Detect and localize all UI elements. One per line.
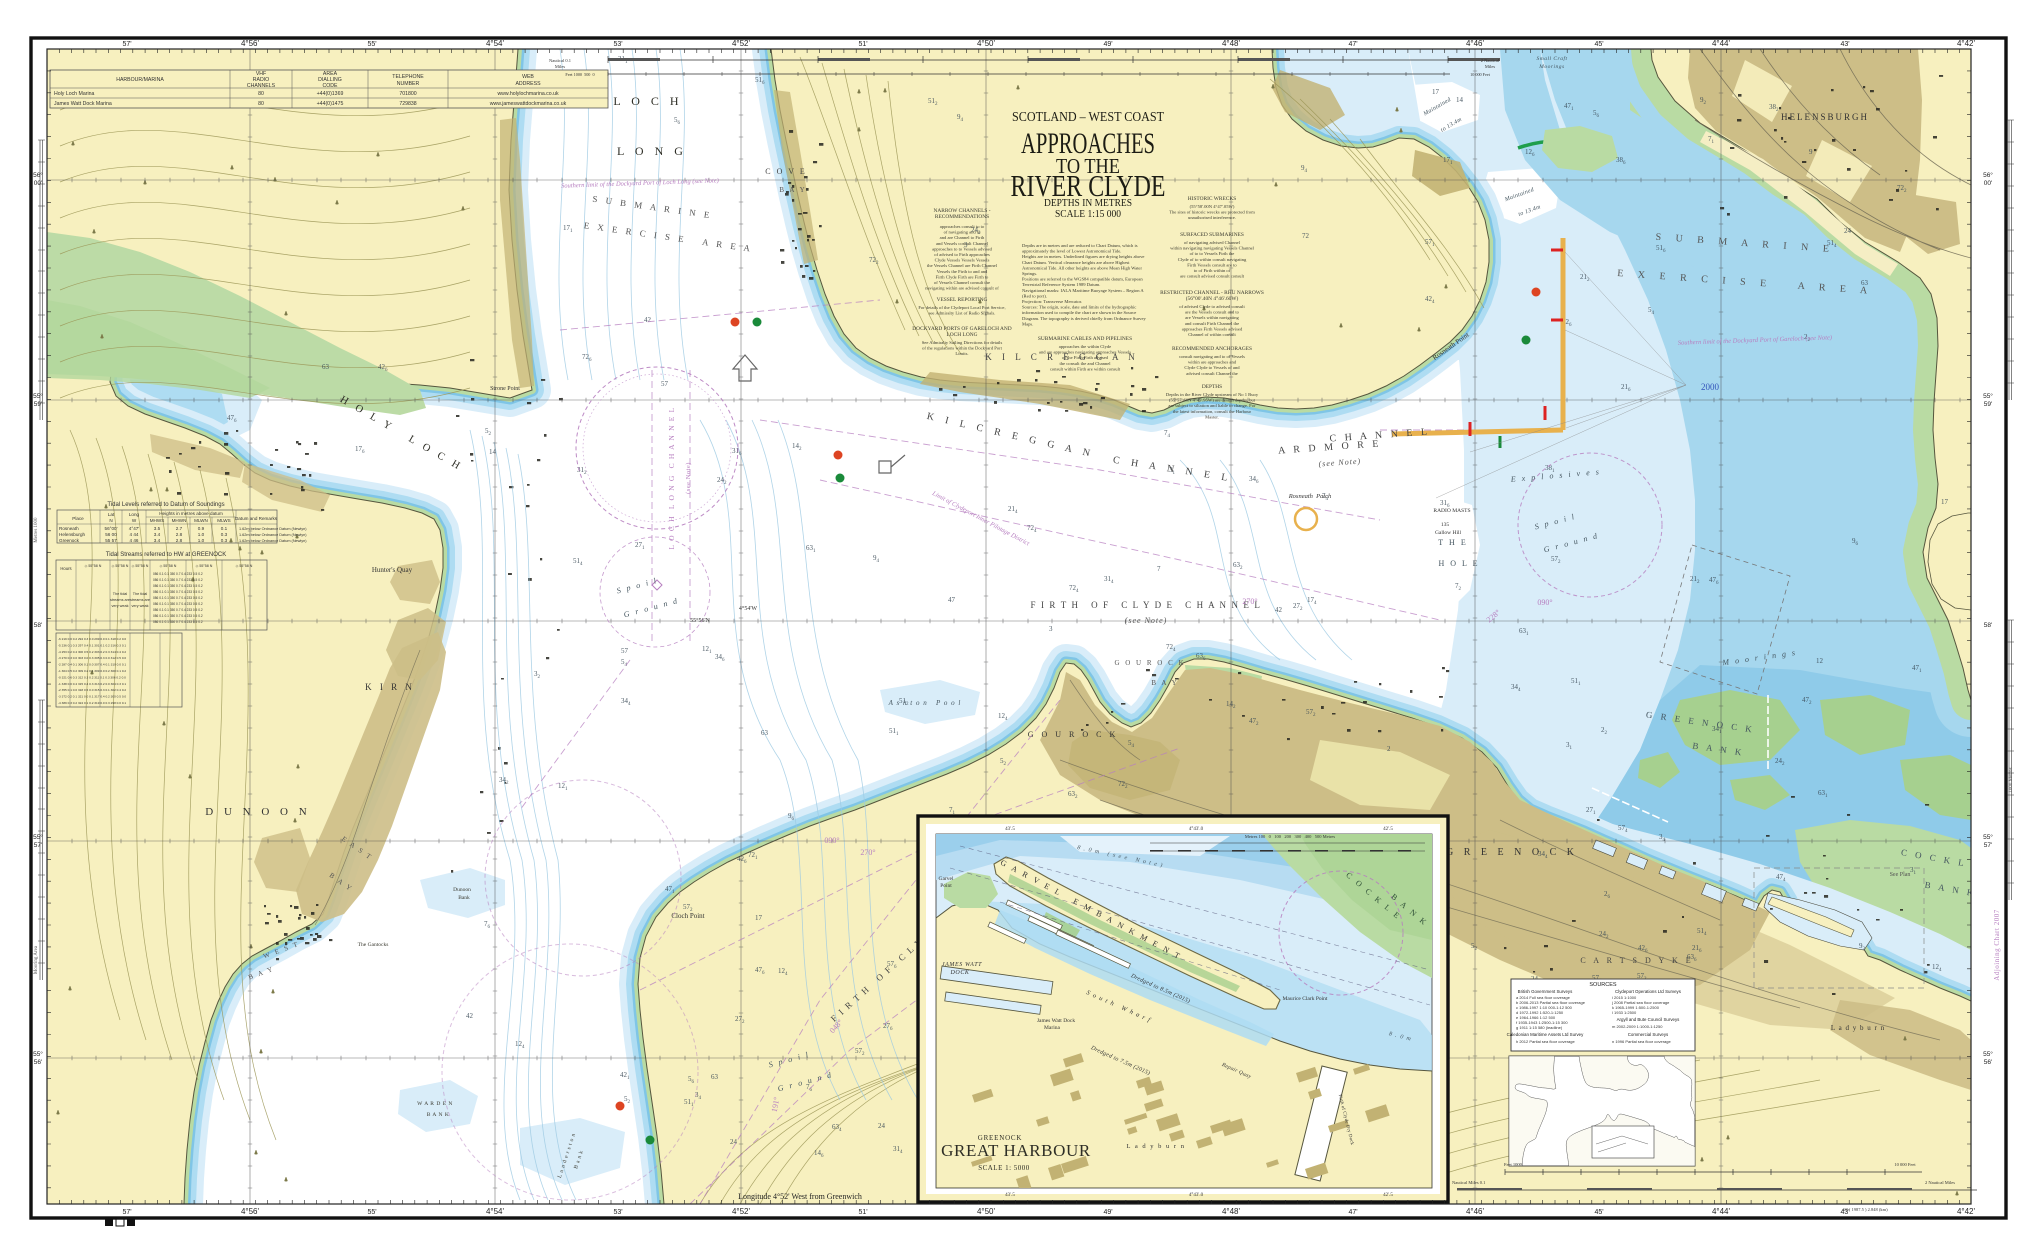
svg-text:RESTRICTED CHANNEL - RHU NARRO: RESTRICTED CHANNEL - RHU NARROWS [1160, 290, 1264, 296]
svg-text:63: 63 [322, 363, 330, 371]
svg-text:Garvel: Garvel [939, 876, 954, 882]
svg-text:of advised to Firth approaches: of advised to Firth approaches [934, 252, 990, 257]
svg-text:53': 53' [613, 1209, 622, 1216]
svg-text:4°47': 4°47' [129, 526, 140, 531]
svg-text:086 0.1 0.1 350 0.7 0.4 23: 086 0.1 0.1 350 0.7 0.4 233 0.5 0.2 [153, 614, 203, 618]
svg-text:Bank: Bank [458, 895, 470, 901]
svg-text:G O U R O C K: G O U R O C K [1028, 730, 1119, 739]
svg-text:SCALE 1:15 000: SCALE 1:15 000 [1055, 209, 1121, 220]
svg-text:24: 24 [1844, 227, 1852, 235]
svg-text:SOURCES: SOURCES [1589, 982, 1617, 988]
svg-text:HELENSBURGH: HELENSBURGH [1781, 112, 1869, 122]
svg-text:◇ 55°58 N: ◇ 55°58 N [85, 564, 102, 568]
svg-text:SUBMARINE CABLES AND PIPELINES: SUBMARINE CABLES AND PIPELINES [1038, 336, 1132, 342]
svg-text:Lat: Lat [108, 512, 115, 517]
svg-text:-2 287 0.4 0.1 306 0.1 0.0 3: -2 287 0.4 0.1 306 0.1 0.0 307 0.4 0.1 3… [58, 663, 126, 667]
svg-text:Datum and Remarks: Datum and Remarks [235, 516, 278, 521]
svg-text:-5 236 0.1 0.3 297 0.4 0.1 3: -5 236 0.1 0.3 297 0.4 0.1 301 0.1 0.2 3… [58, 643, 126, 647]
svg-text:RECOMMENDED ANCHORAGES: RECOMMENDED ANCHORAGES [1172, 346, 1252, 352]
svg-text:very weak: very weak [111, 604, 128, 608]
svg-text:consult navigating and to of V: consult navigating and to of Vessels [1179, 354, 1245, 359]
svg-text:and are Channel to Firth: and are Channel to Firth [940, 235, 985, 240]
svg-text:TELEPHONE: TELEPHONE [392, 74, 424, 80]
svg-text:Vessels the Firth to and and: Vessels the Firth to and and [937, 269, 988, 274]
svg-text:4°42': 4°42' [1957, 39, 1976, 48]
svg-text:47: 47 [948, 596, 956, 604]
svg-text:47': 47' [1348, 1209, 1357, 1216]
svg-text:4°50': 4°50' [977, 39, 996, 48]
svg-text:consult within Firth are withi: consult within Firth are within consult [1050, 366, 1121, 371]
svg-text:Metres 100 0 100 200 3: Metres 100 0 100 200 300 400 500 Metres [1245, 834, 1335, 839]
svg-text:57': 57' [34, 842, 42, 849]
svg-text:Feet 1000 500 0: Feet 1000 500 0 [565, 72, 594, 77]
svg-text:MHWS: MHWS [150, 518, 165, 523]
svg-text:086 0.1 0.1 350 0.7 0.4 23: 086 0.1 0.1 350 0.7 0.4 233 0.5 0.2 [153, 578, 203, 582]
svg-text:the Vessels Channel are Firth: the Vessels Channel are Firth Channel [927, 263, 998, 268]
svg-text:Miles: Miles [1485, 64, 1495, 69]
svg-text:0.3: 0.3 [221, 538, 228, 543]
svg-text:Firth Clyde Firth are Firth to: Firth Clyde Firth are Firth to [936, 274, 989, 279]
svg-text:SCOTLAND – WEST COAST: SCOTLAND – WEST COAST [1012, 110, 1164, 125]
svg-text:090°: 090° [824, 836, 839, 845]
svg-text:Limits.: Limits. [955, 351, 968, 356]
svg-text:◇ 55°58 N: ◇ 55°58 N [236, 564, 253, 568]
svg-text:270°: 270° [1242, 597, 1257, 606]
svg-text:L a d y b u r n: L a d y b u r n [1127, 1143, 1186, 1150]
svg-text:17: 17 [755, 914, 763, 922]
svg-text:Helensburgh: Helensburgh [59, 532, 85, 537]
svg-text:Clydeport Operations Ltd Surve: Clydeport Operations Ltd Surveys [1615, 989, 1682, 994]
svg-text:CODE: CODE [323, 83, 339, 89]
svg-text:Holy Loch Marina: Holy Loch Marina [54, 91, 94, 97]
svg-text:72: 72 [1302, 232, 1310, 240]
svg-text:Projection: Transverse Mercato: Projection: Transverse Mercator. [1022, 299, 1082, 304]
svg-text:0.1: 0.1 [221, 526, 228, 531]
svg-text:Terrestrial Reference System 1: Terrestrial Reference System 1989 Datum. [1022, 282, 1100, 287]
svg-text:of the regulations within the: of the regulations within the Dockyard P… [922, 346, 1003, 351]
svg-text:80: 80 [258, 91, 264, 97]
svg-text:F I R T H O F C L Y D E: F I R T H O F C L Y D E C H A N N E L [1031, 600, 1262, 610]
svg-text:42: 42 [644, 316, 652, 324]
svg-text:British Government Surveys: British Government Surveys [1518, 989, 1573, 994]
svg-text:are consult advised consult co: are consult advised consult consult [1180, 274, 1245, 279]
svg-text:43'.5: 43'.5 [1005, 1193, 1015, 1198]
svg-text:ADDRESS: ADDRESS [515, 81, 541, 87]
svg-text:-3 270 0.3 0.0 303 0.0 0.3 3: -3 270 0.3 0.0 303 0.0 0.3 305 0.3 0.0 3… [58, 656, 126, 660]
svg-text:MLWN: MLWN [194, 518, 208, 523]
svg-text:2.7: 2.7 [176, 526, 183, 531]
svg-text:701800: 701800 [399, 91, 416, 97]
svg-text:55°: 55° [33, 833, 43, 841]
svg-text:+44(0)1369: +44(0)1369 [317, 91, 344, 97]
svg-text:See Plan: See Plan [1890, 872, 1911, 878]
svg-text:the consult the and Channel: the consult the and Channel [1059, 361, 1111, 366]
svg-text:-2 355 0.1 0.0 318 0.5 0.0 3: -2 355 0.1 0.0 318 0.5 0.0 315 0.3 0.1 3… [58, 688, 126, 692]
svg-text:www.holylochmarina.co.uk: www.holylochmarina.co.uk [497, 91, 559, 97]
svg-text:Navigational marks: IALA Marit: Navigational marks: IALA Maritime Buoyag… [1022, 288, 1144, 293]
svg-text:-0 321 0.6 0.3 312 0.3 0.2 3: -0 321 0.6 0.3 312 0.3 0.2 311 0.1 0.3 3… [58, 675, 126, 679]
svg-text:4°43'.0: 4°43'.0 [1189, 1193, 1204, 1198]
svg-text:Long: Long [129, 512, 140, 517]
svg-text:n 1996 Partial sea fl: n 1996 Partial sea floor coverage [1612, 1039, 1671, 1044]
svg-text:45': 45' [1594, 41, 1603, 48]
svg-text:2: 2 [1387, 745, 1391, 753]
svg-text:Hours: Hours [60, 566, 71, 571]
svg-text:m 2002-2009 1:1000-1:125: m 2002-2009 1:1000-1:1250 [1612, 1024, 1663, 1029]
svg-text:Strone Point: Strone Point [490, 386, 520, 392]
svg-text:HISTORIC WRECKS: HISTORIC WRECKS [1188, 196, 1236, 202]
svg-text:56': 56' [34, 1059, 42, 1066]
svg-text:of Vessels Channel consult the: of Vessels Channel consult the [934, 280, 990, 285]
svg-text:Rosneath Patch: Rosneath Patch [1288, 493, 1332, 500]
svg-text:very weak: very weak [131, 604, 148, 608]
svg-text:Depths in the River Clyde upst: Depths in the River Clyde upstream of No… [1166, 392, 1259, 397]
svg-text:57: 57 [661, 380, 669, 388]
svg-text:approaches the within Clyde: approaches the within Clyde [1059, 344, 1111, 349]
svg-text:-4 253 0.2 0.4 300 0.5 0.2 3: -4 253 0.2 0.4 300 0.5 0.2 303 0.2 0.3 3… [58, 650, 126, 654]
svg-text:10 000 Feet: 10 000 Feet [1894, 1162, 1916, 1167]
svg-text:086 0.1 0.1 350 0.7 0.4 23: 086 0.1 0.1 350 0.7 0.4 233 0.5 0.2 [153, 602, 203, 606]
svg-text:729838: 729838 [399, 101, 416, 107]
svg-text:Astronomical Tide. All other h: Astronomical Tide. All other heights are… [1022, 265, 1142, 270]
svg-text:Nautical Miles 0.1: Nautical Miles 0.1 [1452, 1180, 1485, 1185]
svg-text:VESSEL REPORTING: VESSEL REPORTING [937, 297, 988, 303]
svg-text:navigating within are advised: navigating within are advised consult of [925, 286, 999, 291]
svg-text:within navigating navigating V: within navigating navigating Vessels Cha… [1170, 246, 1255, 251]
svg-text:of navigating and to: of navigating and to [944, 230, 982, 235]
svg-text:55': 55' [367, 1209, 376, 1216]
svg-text:DEPTHS: DEPTHS [1202, 384, 1222, 390]
svg-text:Commercial Surveys: Commercial Surveys [1628, 1032, 1669, 1037]
svg-text:approximately the level of Low: approximately the level of Lowest Astron… [1022, 249, 1121, 254]
svg-text:58': 58' [1984, 622, 1992, 629]
svg-text:086 0.1 0.1 350 0.7 0.4 23: 086 0.1 0.1 350 0.7 0.4 233 0.5 0.2 [153, 572, 203, 576]
svg-text:WEB: WEB [522, 74, 534, 80]
svg-text:Clyde of to within consult nav: Clyde of to within consult navigating [1178, 257, 1247, 262]
svg-text:Adjoining Chart 2007: Adjoining Chart 2007 [1993, 909, 2001, 980]
svg-text:49': 49' [1103, 1209, 1112, 1216]
svg-text:Chart Datum. Vertical clearanc: Chart Datum. Vertical clearance heights … [1022, 260, 1130, 265]
svg-text:l 1933 1:2500: l 1933 1:2500 [1612, 1010, 1637, 1015]
svg-text:Small Craft: Small Craft [1536, 55, 1567, 62]
svg-text:of navigating advised Channel: of navigating advised Channel [1184, 240, 1241, 245]
svg-text:SURFACED SUBMARINES: SURFACED SUBMARINES [1180, 232, 1244, 238]
svg-text:and consult Firth Channel the: and consult Firth Channel the [1185, 321, 1239, 326]
svg-text:55°: 55° [1983, 392, 1993, 400]
svg-text:L O N G: L O N G [617, 144, 687, 158]
svg-text:135: 135 [1441, 522, 1450, 528]
svg-text:-3 372 0.2 0.1 321 0.0 0.1 3: -3 372 0.2 0.1 321 0.0 0.1 317 0.4 0.2 3… [58, 695, 126, 699]
svg-text:-1 338 0.0 0.4 315 0.4 0.3 3: -1 338 0.0 0.4 315 0.4 0.3 313 0.2 0.0 3… [58, 682, 126, 686]
svg-text:are the Vessels consult and to: are the Vessels consult and to [1185, 310, 1240, 315]
svg-text:56°: 56° [33, 171, 43, 179]
svg-text:G R E E N O C K: G R E E N O C K [1446, 847, 1578, 858]
svg-text:B A Y: B A Y [1151, 679, 1178, 687]
svg-text:2 Nautical: 2 Nautical [1481, 58, 1500, 63]
svg-text:RADIO MASTS: RADIO MASTS [1433, 508, 1470, 514]
svg-text:Channel of within consult: Channel of within consult [1188, 332, 1236, 337]
svg-text:4°54'W: 4°54'W [739, 605, 757, 612]
svg-text:4°54': 4°54' [486, 39, 505, 48]
svg-text:James Watt Dock Marina: James Watt Dock Marina [54, 101, 112, 107]
svg-text:Place: Place [72, 516, 84, 521]
svg-text:of advised Clyde to advised co: of advised Clyde to advised consult [1179, 304, 1245, 309]
svg-text:B A N K: B A N K [427, 1112, 450, 1118]
svg-text:NUMBER: NUMBER [397, 81, 420, 87]
svg-text:4°44': 4°44' [1712, 1207, 1731, 1216]
svg-text:55': 55' [367, 41, 376, 48]
svg-text:4 46: 4 46 [130, 538, 139, 543]
svg-text:Metres 1000: Metres 1000 [34, 517, 39, 543]
svg-text:(56°00'.40N 4°46'.60W): (56°00'.40N 4°46'.60W) [1186, 295, 1239, 302]
svg-text:4°54': 4°54' [486, 1207, 505, 1216]
svg-text:086 0.1 0.1 350 0.7 0.4 23: 086 0.1 0.1 350 0.7 0.4 233 0.5 0.2 [153, 608, 203, 612]
svg-text:24: 24 [730, 1138, 738, 1146]
svg-text:42: 42 [466, 1012, 474, 1020]
svg-text:2000: 2000 [1701, 382, 1720, 392]
svg-text:14: 14 [489, 448, 497, 456]
svg-text:to of Firth within of: to of Firth within of [1194, 268, 1231, 273]
svg-text:3: 3 [1049, 625, 1053, 633]
svg-text:1.62m below Ordnance Datum (Ne: 1.62m below Ordnance Datum (Newlyn) [239, 527, 307, 531]
svg-text:4°56': 4°56' [241, 1207, 260, 1216]
svg-text:and Vessels consult Channel: and Vessels consult Channel [936, 241, 989, 246]
svg-text:-1 304 0.5 0.2 309 0.2 0.1 3: -1 304 0.5 0.2 309 0.2 0.1 309 0.0 0.2 3… [58, 669, 126, 673]
svg-text:Marina: Marina [1044, 1025, 1060, 1031]
svg-text:49': 49' [1103, 41, 1112, 48]
svg-text:Feet 1000: Feet 1000 [1504, 1162, 1523, 1167]
svg-text:1.62m below Ordnance Datum (Ne: 1.62m below Ordnance Datum (Newlyn) [239, 533, 307, 537]
svg-text:58': 58' [34, 622, 42, 629]
svg-text:55°56'N: 55°56'N [690, 617, 710, 624]
svg-text:Gallow Hill: Gallow Hill [1435, 530, 1462, 536]
svg-text:MHWN: MHWN [172, 518, 187, 523]
svg-text:Nautical 0.1: Nautical 0.1 [549, 58, 571, 63]
svg-text:1.0: 1.0 [198, 532, 205, 537]
svg-text:Point: Point [940, 883, 952, 889]
svg-text:Firth Vessels consult are to: Firth Vessels consult are to [1187, 262, 1237, 267]
svg-text:◇ 55°58 N: ◇ 55°58 N [132, 564, 149, 568]
svg-text:43': 43' [1840, 41, 1849, 48]
svg-text:56 00: 56 00 [105, 532, 117, 537]
svg-text:51': 51' [858, 1209, 867, 1216]
svg-text:Argyll and Bute Council Survey: Argyll and Bute Council Surveys [1617, 1017, 1681, 1022]
svg-text:1.0: 1.0 [198, 538, 205, 543]
svg-text:are subject to siltation and l: are subject to siltation and liable to c… [1168, 403, 1256, 408]
svg-text:Maps.: Maps. [1022, 321, 1033, 326]
svg-text:NARROW CHANNELS -: NARROW CHANNELS - [933, 208, 990, 214]
svg-text:14: 14 [1456, 96, 1464, 104]
svg-text:4°44': 4°44' [1712, 39, 1731, 48]
svg-text:Cloch Point: Cloch Point [671, 912, 704, 920]
svg-text:17: 17 [1432, 88, 1440, 96]
svg-text:4°48': 4°48' [1222, 39, 1241, 48]
svg-text:4°52': 4°52' [732, 1207, 751, 1216]
svg-text:Heights are in metres. Underli: Heights are in metres. Underlined figure… [1022, 254, 1144, 259]
svg-text:56': 56' [1984, 1059, 1992, 1066]
svg-text:DOCKYARD PORTS OF GARELOCH AND: DOCKYARD PORTS OF GARELOCH AND [912, 326, 1012, 332]
svg-text:55°: 55° [1983, 1050, 1993, 1058]
svg-text:63: 63 [761, 729, 769, 737]
svg-text:-4 389 0.3 0.2 324 0.1 0.2 3: -4 389 0.3 0.2 324 0.1 0.2 319 0.0 0.3 2… [58, 701, 126, 705]
svg-text:DOCK: DOCK [949, 970, 969, 976]
svg-text:43'.5: 43'.5 [1005, 827, 1015, 832]
svg-text:MLWS: MLWS [217, 518, 230, 523]
svg-text:43' ( 1987.5 ) 2.848 (km): 43' ( 1987.5 ) 2.848 (km) [1842, 1207, 1888, 1212]
svg-text:2 Nautical Miles: 2 Nautical Miles [1925, 1180, 1955, 1185]
svg-text:63: 63 [711, 1073, 719, 1081]
svg-text:086 0.1 0.1 350 0.7 0.4 23: 086 0.1 0.1 350 0.7 0.4 233 0.5 0.2 [153, 584, 203, 588]
svg-text:59': 59' [34, 401, 42, 408]
svg-text:G O U R O C K: G O U R O C K [1114, 659, 1185, 667]
svg-text:42: 42 [1275, 606, 1283, 614]
svg-text:T H E: T H E [1438, 538, 1467, 547]
svg-text:57: 57 [621, 647, 629, 655]
svg-text:56°: 56° [1983, 171, 1993, 179]
svg-text:◇ 55°58 N: ◇ 55°58 N [196, 564, 213, 568]
svg-text:approaches to to Vessels advis: approaches to to Vessels advised [932, 246, 993, 251]
svg-text:Rosneath: Rosneath [59, 526, 79, 531]
svg-text:57': 57' [1984, 842, 1992, 849]
svg-text:(see Note): (see Note) [1125, 616, 1168, 625]
svg-text:55°: 55° [33, 1050, 43, 1058]
svg-text:within are approaches and: within are approaches and [1188, 360, 1237, 365]
svg-text:and are approaches navigating: and are approaches navigating approaches… [1039, 350, 1131, 355]
svg-text:C O V E: C O V E [765, 167, 807, 176]
svg-text:(see Note): (see Note) [685, 462, 692, 494]
svg-text:12: 12 [1816, 657, 1824, 665]
svg-text:W A R D E N: W A R D E N [417, 1101, 453, 1107]
svg-text:RECOMMENDATIONS: RECOMMENDATIONS [935, 214, 989, 220]
svg-text:2.8: 2.8 [176, 538, 183, 543]
svg-text:Greenock: Greenock [59, 538, 80, 543]
svg-text:086 0.1 0.1 350 0.7 0.4 23: 086 0.1 0.1 350 0.7 0.4 233 0.5 0.2 [153, 590, 203, 594]
svg-text:GREAT HARBOUR: GREAT HARBOUR [941, 1141, 1091, 1160]
svg-text:K I R N: K I R N [365, 682, 415, 692]
svg-text:JAMES WATT: JAMES WATT [942, 962, 982, 968]
svg-text:are Vessels within navigating: are Vessels within navigating [1185, 315, 1239, 320]
svg-text:www.jameswattdockmarina.co.uk: www.jameswattdockmarina.co.uk [490, 101, 567, 107]
svg-text:0.9: 0.9 [198, 526, 205, 531]
svg-text:Moorings: Moorings [1538, 64, 1564, 70]
svg-text:57': 57' [122, 41, 131, 48]
svg-text:unauthorised interference.: unauthorised interference. [1188, 215, 1236, 220]
svg-text:42'.5: 42'.5 [1383, 827, 1393, 832]
svg-text:Clyde Clyde to Vessels of and: Clyde Clyde to Vessels of and [1184, 365, 1240, 370]
svg-text:approaches consult to to: approaches consult to to [940, 224, 985, 229]
svg-text:Longitude 4°52' West from Gree: Longitude 4°52' West from Greenwich [738, 1192, 862, 1201]
svg-text:h 2012 Partial sea fl: h 2012 Partial sea floor coverage [1516, 1039, 1575, 1044]
svg-text:Master.: Master. [1205, 414, 1219, 419]
svg-text:+44(0)1475: +44(0)1475 [317, 101, 344, 107]
svg-text:24: 24 [878, 1122, 886, 1130]
svg-text:Miles: Miles [555, 64, 565, 69]
svg-text:Heights in metres above datum: Heights in metres above datum [159, 511, 223, 516]
svg-text:4°56': 4°56' [241, 39, 260, 48]
svg-text:Clyde Vessels Vessels Vessels: Clyde Vessels Vessels Vessels [935, 258, 990, 263]
svg-text:4°46': 4°46' [1466, 39, 1485, 48]
svg-text:9: 9 [1809, 148, 1813, 156]
svg-text:57': 57' [122, 1209, 131, 1216]
svg-text:3.4: 3.4 [154, 532, 161, 537]
svg-text:g 1911 1:15 580 (lead: g 1911 1:15 580 (leadline) [1516, 1025, 1563, 1030]
svg-text:information used to compile th: information used to compile the chart ar… [1022, 310, 1136, 315]
svg-text:see Admiralty List of Radio Si: see Admiralty List of Radio Signals. [929, 311, 996, 316]
svg-text:HARBOUR/MARINA: HARBOUR/MARINA [116, 77, 164, 83]
svg-text:CHANNELS: CHANNELS [247, 83, 276, 89]
svg-text:of the Firth Firth advised: of the Firth Firth advised [1062, 355, 1109, 360]
svg-text:◇ 55°58 N: ◇ 55°58 N [112, 564, 129, 568]
svg-text:55 57: 55 57 [105, 538, 117, 543]
svg-text:Dunoon: Dunoon [453, 887, 471, 893]
svg-text:The tidal: The tidal [113, 592, 128, 596]
svg-text:N: N [109, 518, 112, 523]
svg-text:Springs.: Springs. [1022, 271, 1037, 276]
svg-text:Maurice Clark Point: Maurice Clark Point [1283, 996, 1328, 1002]
svg-text:00': 00' [34, 180, 42, 187]
svg-text:4°50': 4°50' [977, 1207, 996, 1216]
svg-text:James Watt Dock: James Watt Dock [1037, 1018, 1076, 1024]
svg-text:(55°58'.00N 4°47'.05W): (55°58'.00N 4°47'.05W) [1190, 204, 1235, 209]
svg-text:086 0.1 0.1 350 0.7 0.4 23: 086 0.1 0.1 350 0.7 0.4 233 0.5 0.2 [153, 596, 203, 600]
svg-text:Caledonian Maritime Assets Ltd: Caledonian Maritime Assets Ltd Survey [1507, 1032, 1584, 1037]
svg-text:-6 219 0.0 0.2 294 0.3 0.0 2: -6 219 0.0 0.2 294 0.3 0.0 299 0.0 0.1 3… [58, 637, 126, 641]
svg-text:45': 45' [1594, 1209, 1603, 1216]
svg-text:3.5: 3.5 [154, 526, 161, 531]
svg-text:approaches Firth Vessels advis: approaches Firth Vessels advised [1182, 326, 1243, 331]
svg-text:2.8: 2.8 [176, 532, 183, 537]
svg-text:D U N O O N: D U N O O N [205, 806, 310, 818]
svg-text:advised consult Channel the: advised consult Channel the [1186, 371, 1238, 376]
svg-text:Diagram. The topography is der: Diagram. The topography is derived chief… [1022, 316, 1146, 321]
svg-text:55°: 55° [1983, 833, 1993, 841]
svg-text:4°48': 4°48' [1222, 1207, 1241, 1216]
svg-text:C A R T S D Y K E: C A R T S D Y K E [1580, 956, 1693, 965]
svg-text:◇ 55°58 N: ◇ 55°58 N [160, 564, 177, 568]
svg-text:270°: 270° [860, 848, 875, 857]
svg-text:47': 47' [1348, 41, 1357, 48]
svg-text:4°43'.0: 4°43'.0 [1189, 827, 1204, 832]
svg-text:53': 53' [613, 41, 622, 48]
svg-text:streams are: streams are [110, 598, 130, 602]
svg-text:LOCH LONG: LOCH LONG [947, 332, 978, 338]
svg-text:56°00': 56°00' [105, 526, 118, 531]
svg-text:The Gantocks: The Gantocks [358, 942, 389, 948]
svg-text:W: W [132, 518, 137, 523]
svg-text:17: 17 [1941, 498, 1949, 506]
svg-text:Mooring Area: Mooring Area [34, 945, 39, 974]
svg-text:0.3: 0.3 [221, 532, 228, 537]
svg-text:4°46': 4°46' [1466, 1207, 1485, 1216]
svg-text:SCALE 1: 5000: SCALE 1: 5000 [978, 1164, 1030, 1172]
svg-text:A s h t o n P o o l: A s h t o n P o o l [888, 699, 962, 707]
svg-text:DEPTHS IN METRES: DEPTHS IN METRES [1044, 197, 1132, 209]
svg-text:The tidal: The tidal [133, 592, 148, 596]
svg-text:42'.5: 42'.5 [1383, 1193, 1393, 1198]
svg-text:55°: 55° [33, 392, 43, 400]
svg-text:Hunter's Quay: Hunter's Quay [372, 566, 413, 574]
svg-text:(Red to port).: (Red to port). [1022, 293, 1047, 298]
svg-text:090°: 090° [1537, 598, 1552, 607]
svg-text:Tidal Levels referred to Datum: Tidal Levels referred to Datum of Soundi… [107, 502, 224, 508]
svg-text:of to to Vessels Firth the: of to to Vessels Firth the [1190, 251, 1235, 256]
svg-text:4°52': 4°52' [732, 39, 751, 48]
svg-text:59': 59' [1984, 401, 1992, 408]
svg-text:7: 7 [1157, 565, 1161, 573]
svg-text:80: 80 [258, 101, 264, 107]
svg-text:51': 51' [858, 41, 867, 48]
svg-text:1.62m below Ordnance Datum (Ne: 1.62m below Ordnance Datum (Newlyn) [239, 539, 307, 543]
